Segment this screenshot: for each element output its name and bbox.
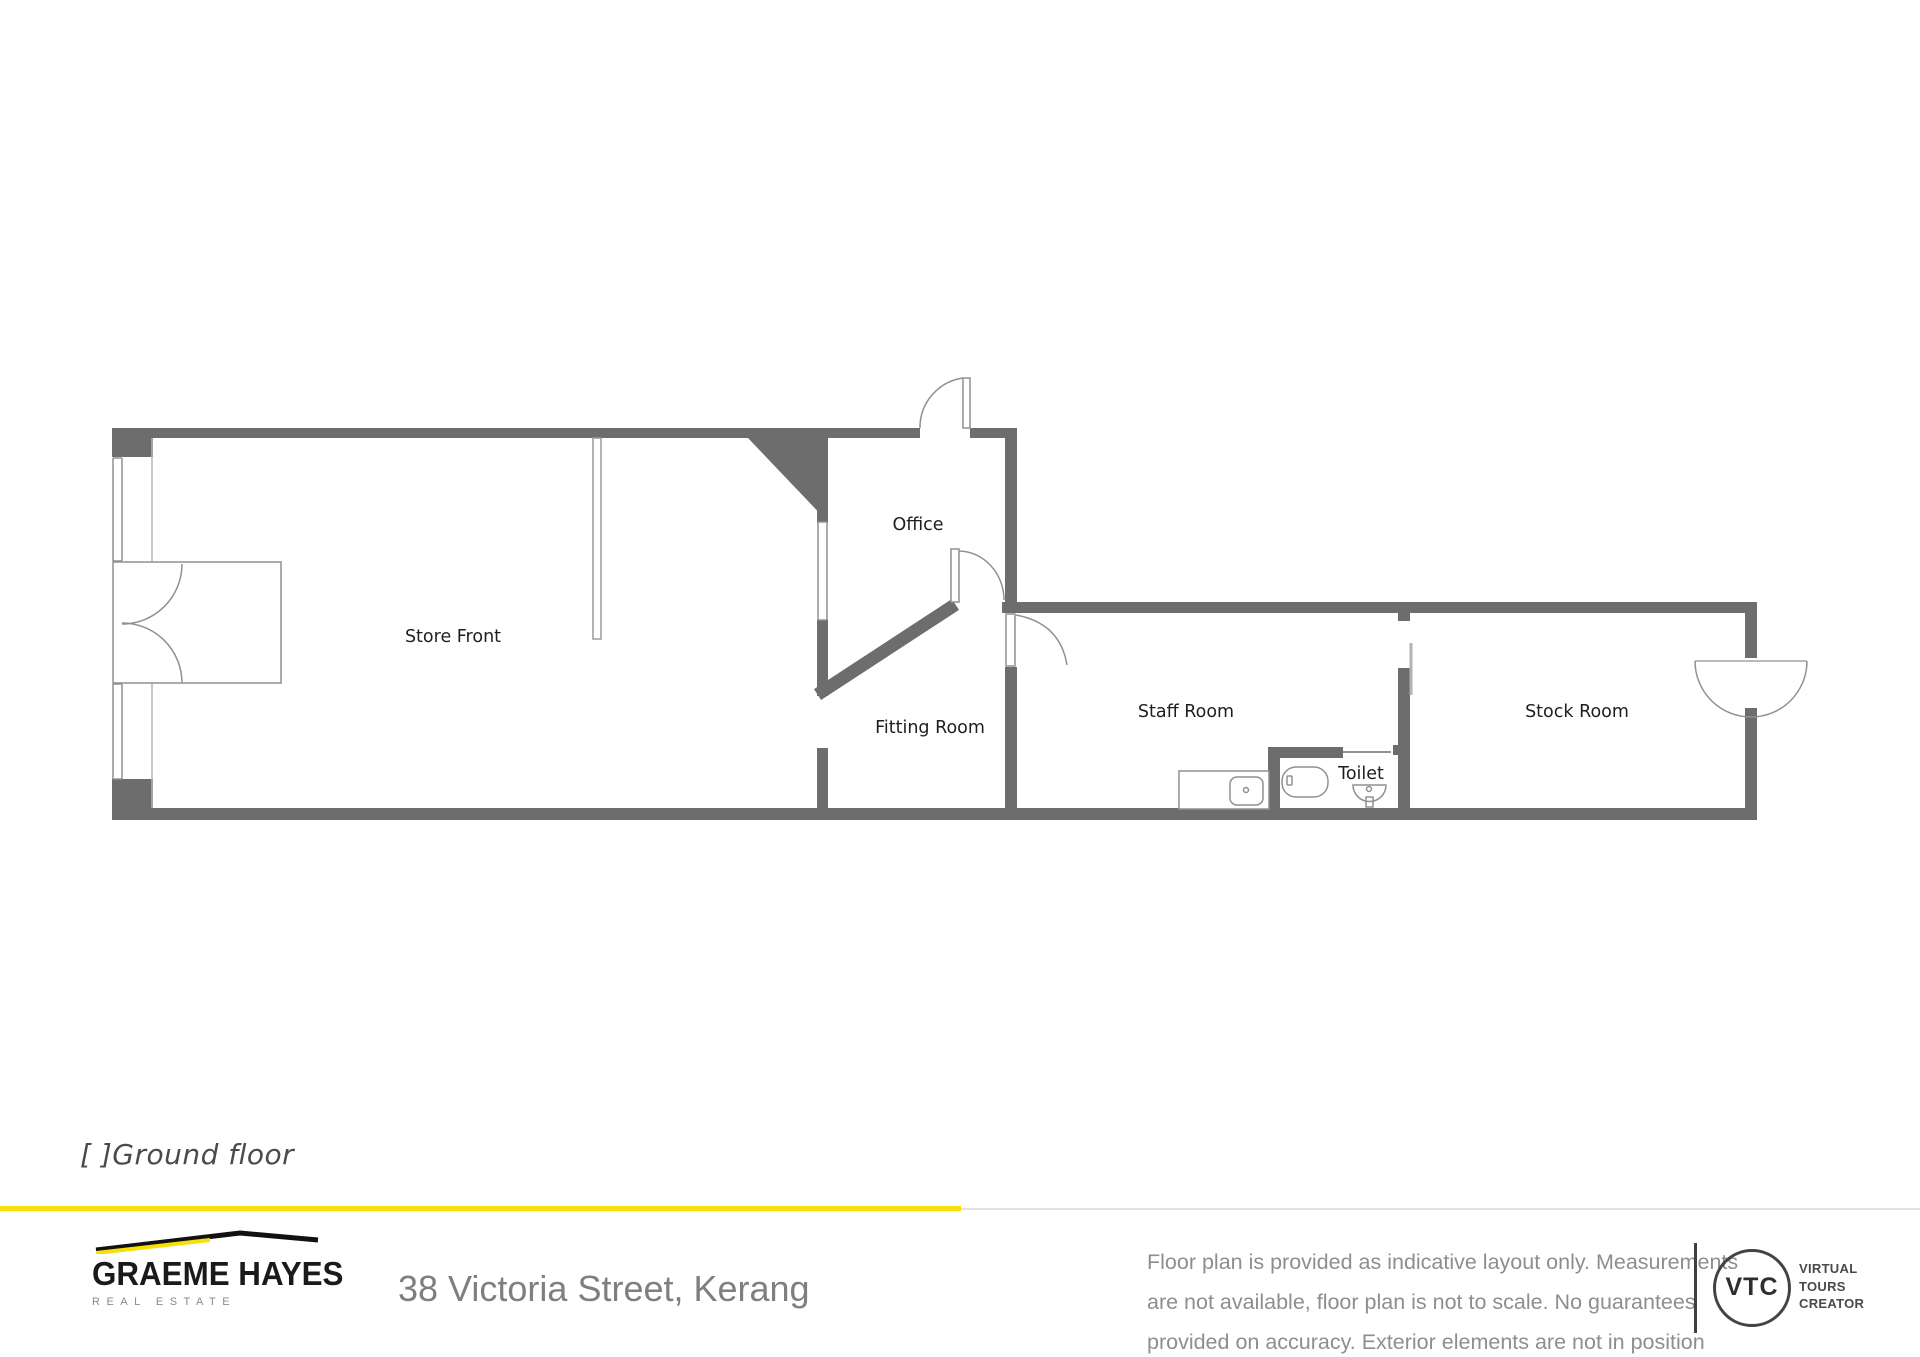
room-label-toilet: Toilet <box>1337 764 1384 784</box>
right-wall-upper <box>1745 602 1757 658</box>
disclaimer-text: Floor plan is provided as indicative lay… <box>1147 1242 1738 1357</box>
office-left-wall-upper <box>817 438 828 522</box>
agency-logo: GRAEME HAYES REAL ESTATE <box>92 1228 332 1308</box>
office-right-wall <box>1005 428 1017 613</box>
office-top-door-arc <box>920 378 963 428</box>
disclaimer-line-2: are not available, floor plan is not to … <box>1147 1282 1738 1322</box>
staff-stock-divider-wall <box>1398 668 1410 820</box>
toilet-hand-basin <box>1353 785 1386 802</box>
disclaimer-line-1: Floor plan is provided as indicative lay… <box>1147 1242 1738 1282</box>
room-label-fitting-room: Fitting Room <box>875 718 985 738</box>
right-wall-lower <box>1745 708 1757 820</box>
vtc-word-tours: TOURS <box>1799 1278 1879 1296</box>
staff-door-arc <box>1016 615 1067 665</box>
agency-tagline: REAL ESTATE <box>92 1296 332 1308</box>
staff-door-leaf <box>1006 614 1015 666</box>
top-wall-left <box>112 428 920 438</box>
storefront-partition <box>593 438 601 639</box>
walls <box>112 428 1757 820</box>
accent-bar-gray <box>961 1208 1920 1210</box>
vtc-word-virtual: VIRTUAL <box>1799 1260 1879 1278</box>
entry-doors <box>113 562 281 683</box>
fitting-left-wall-lower <box>817 748 828 808</box>
office-top-door-leaf <box>963 378 970 428</box>
room-label-staff-room: Staff Room <box>1138 702 1234 722</box>
room-label-store-front: Store Front <box>405 627 501 647</box>
doors <box>920 378 1807 752</box>
office-bottom-door-arc <box>959 551 1004 600</box>
office-diagonal-wall <box>823 608 950 691</box>
corner-block-top-left <box>112 428 153 457</box>
stock-divider-stub <box>1398 613 1410 621</box>
level-label: [ ]Ground floor <box>80 1138 294 1171</box>
toilet-pan <box>1282 767 1328 797</box>
footer-divider <box>1694 1243 1697 1333</box>
vtc-circle-icon: VTC <box>1713 1249 1791 1327</box>
agency-name: GRAEME HAYES <box>92 1255 320 1293</box>
bottom-wall <box>112 808 1757 820</box>
page: Store Front Office Fitting Room Staff Ro… <box>0 0 1920 1357</box>
office-bottom-door-leaf <box>951 549 959 602</box>
fitting-staff-divider-wall <box>1005 667 1017 820</box>
staff-sink-basin <box>1230 777 1263 805</box>
vtc-wordmark: VIRTUAL TOURS CREATOR <box>1799 1260 1879 1313</box>
logo-swoosh-icon <box>92 1228 324 1254</box>
disclaimer-line-3: provided on accuracy. Exterior elements … <box>1147 1322 1738 1357</box>
vtc-word-creator: CREATOR <box>1799 1295 1879 1313</box>
room-label-stock-room: Stock Room <box>1525 702 1629 722</box>
property-address: 38 Victoria Street, Kerang <box>398 1268 810 1310</box>
storefront-corner-triangle <box>748 438 828 522</box>
staff-stock-top-wall <box>1002 602 1757 613</box>
accent-bar-yellow <box>0 1206 961 1211</box>
room-label-office: Office <box>892 515 943 535</box>
toilet-partition-wall <box>1268 747 1280 820</box>
toilet-door-jamb <box>1393 745 1398 755</box>
